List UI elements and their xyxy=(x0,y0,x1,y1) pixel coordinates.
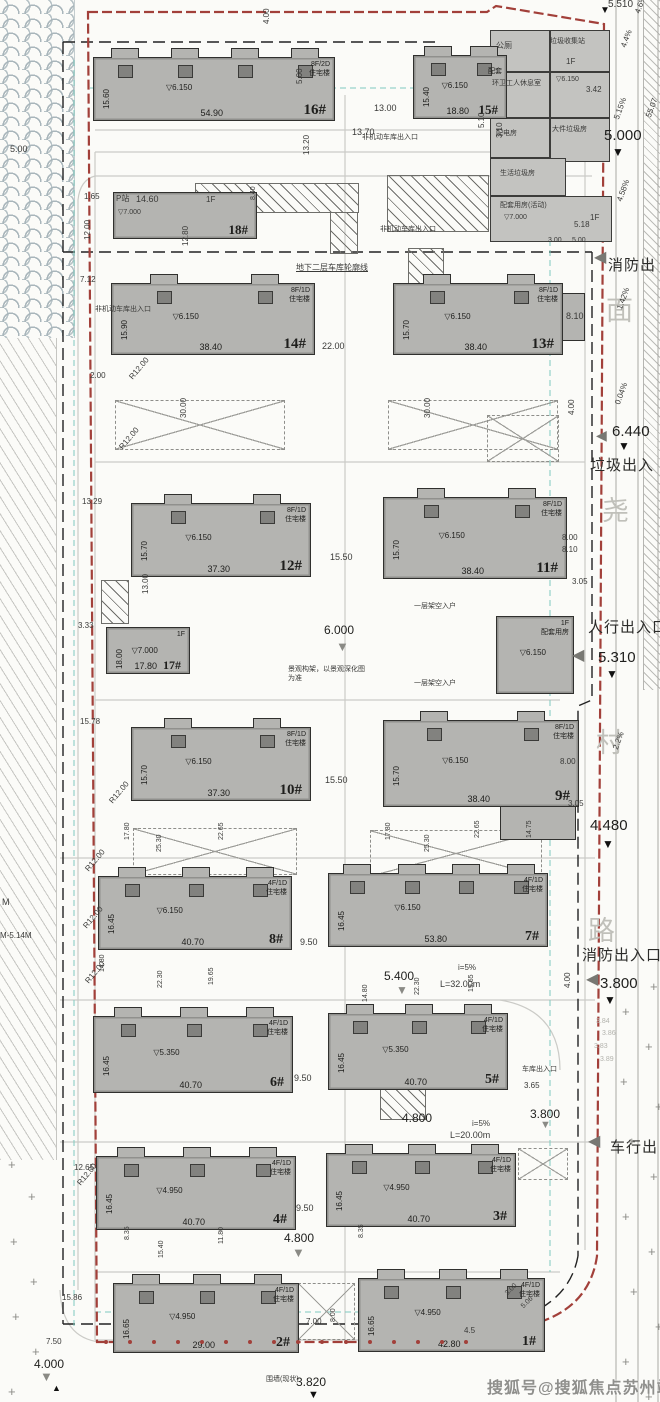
dim-label: 1F xyxy=(206,196,215,204)
facility-room xyxy=(550,30,610,72)
elevation-marker: ▼ xyxy=(336,640,349,653)
building-number: 6# xyxy=(270,1076,284,1090)
stair-core-bump xyxy=(231,48,259,58)
tree-symbol: + xyxy=(10,1235,18,1248)
dim-label: 3.86 xyxy=(602,1030,616,1037)
unit-core xyxy=(415,1161,430,1174)
building-elevation: ▽6.150 xyxy=(520,649,546,657)
building-number: 5# xyxy=(485,1073,499,1087)
dim-label: 3.83 xyxy=(594,1043,608,1050)
stair-core-bump xyxy=(417,488,445,498)
tree-symbol: + xyxy=(655,1100,660,1113)
unit-core xyxy=(514,291,529,304)
building-width-dim: 40.70 xyxy=(404,1078,427,1087)
stair-core-bump xyxy=(246,867,274,877)
unit-core xyxy=(352,1161,367,1174)
building-number: 8# xyxy=(269,933,283,947)
stair-core-bump xyxy=(164,494,192,504)
unit-core xyxy=(431,63,446,76)
building-depth-dim: 15.70 xyxy=(141,541,149,561)
unit-core xyxy=(190,1164,205,1177)
unit-core xyxy=(350,881,365,894)
dim-label: 3.10 xyxy=(496,122,504,138)
dim-label: P站 xyxy=(116,195,129,203)
unit-core xyxy=(139,1291,154,1304)
dim-label: 12.00 xyxy=(84,220,92,240)
building-type-label: 住宅楼 xyxy=(541,510,562,517)
stair-core-bump xyxy=(246,1007,274,1017)
stair-core-bump xyxy=(346,1004,374,1014)
tree-symbol: + xyxy=(620,1075,628,1088)
building-15: 配套15#18.8015.40▽6.150 xyxy=(413,55,507,119)
unit-core xyxy=(157,291,172,304)
dim-label: 5.400 xyxy=(384,970,414,982)
unit-core xyxy=(256,1164,271,1177)
dim-label: 大件垃圾房 xyxy=(552,126,587,133)
facility-room xyxy=(550,118,610,162)
dim-label: 22.65 xyxy=(474,820,481,838)
building-type-label: 住宅楼 xyxy=(522,886,543,893)
stair-core-bump xyxy=(114,1007,142,1017)
building-10: 8F/1D住宅楼10#37.3015.70▽6.150 xyxy=(131,727,311,801)
dim-label: 15.50 xyxy=(325,776,348,785)
elevation-marker: ▼ xyxy=(396,984,408,996)
unit-core xyxy=(124,1164,139,1177)
unit-core xyxy=(405,881,420,894)
building-elevation: ▽6.150 xyxy=(442,757,468,765)
building-8: 4F/1D住宅楼8#40.7016.45▽6.150 xyxy=(98,876,292,950)
dim-label: 7.00 xyxy=(306,1318,322,1326)
tree-symbol: + xyxy=(8,1158,16,1171)
tree-symbol: + xyxy=(655,1320,660,1333)
building-floors-tag: 4F/1D xyxy=(269,1020,288,1027)
building-elevation: ▽6.150 xyxy=(185,758,211,766)
dim-label: 非机动车库出入口 xyxy=(95,306,151,313)
stair-core-bump xyxy=(253,718,281,728)
unit-core xyxy=(238,65,253,78)
dim-label: 25.30 xyxy=(424,834,431,852)
dim-label: 8.00 xyxy=(562,534,578,542)
dim-label: 3.05 xyxy=(568,800,584,808)
stair-core-bump xyxy=(249,1147,277,1157)
dim-label: 5.00 xyxy=(572,237,586,244)
dim-label: 4.800 xyxy=(284,1232,314,1244)
building-floors-tag: 1F xyxy=(561,620,569,627)
dim-label: 17.80 xyxy=(124,822,131,840)
tree-symbol: + xyxy=(8,1385,16,1398)
dim-label: 4.00 xyxy=(263,8,271,24)
building-elevation: ▽5.350 xyxy=(153,1049,179,1057)
dim-label: 一层架空入户 xyxy=(414,603,456,610)
stair-core-bump xyxy=(424,46,452,56)
stair-core-bump xyxy=(452,864,480,874)
dim-label: 13.20 xyxy=(303,135,311,155)
stair-core-bump xyxy=(508,488,536,498)
dim-label: 5.00 xyxy=(10,145,28,154)
dim-label: 4.00 xyxy=(564,972,572,988)
building-depth-dim: 15.90 xyxy=(121,320,129,340)
building-floors-tag: 8F/1D xyxy=(539,287,558,294)
dim-label: 4.800 xyxy=(402,1112,432,1124)
stair-core-bump xyxy=(464,1004,492,1014)
tree-symbol: + xyxy=(650,980,658,993)
elevation-marker: ▼ xyxy=(602,838,614,850)
building-elevation: ▽6.150 xyxy=(157,907,183,915)
building-width-dim: 54.90 xyxy=(200,109,223,118)
dim-label: 垃圾收集站 xyxy=(550,38,585,45)
unit-core xyxy=(260,511,275,524)
building-1: 4F/1D住宅楼1#42.8016.65▽4.950 xyxy=(358,1278,545,1352)
boundary-dot xyxy=(440,1340,444,1344)
dim-label: 配套用房(活动) xyxy=(500,202,547,209)
building-type-label: 住宅楼 xyxy=(266,889,287,896)
building-width-dim: 40.70 xyxy=(179,1081,202,1090)
dim-label: 15.50 xyxy=(330,553,353,562)
dim-label: 14.75 xyxy=(526,820,533,838)
building-floors-tag: 4F/1D xyxy=(521,1282,540,1289)
stair-core-bump xyxy=(377,1269,405,1279)
stair-core-bump xyxy=(439,1269,467,1279)
entrance-marker: ◀ xyxy=(588,1134,600,1150)
fire-lane xyxy=(518,1148,568,1180)
building-type-label: 配套 xyxy=(488,68,502,75)
building-type-label: 住宅楼 xyxy=(285,740,306,747)
facility-room xyxy=(490,158,566,196)
unit-core xyxy=(253,1024,268,1037)
dim-label: ▽6.150 xyxy=(556,76,579,83)
dim-label: 8.00 xyxy=(330,1308,337,1322)
building-11: 8F/1D住宅楼11#38.4015.70▽6.150 xyxy=(383,497,567,579)
boundary-dot xyxy=(320,1340,324,1344)
building-PT: 1F配套用房▽6.150 xyxy=(496,616,574,694)
dim-label: 30.00 xyxy=(180,398,188,418)
elevation-marker: ▼ xyxy=(618,440,630,452)
dim-label: 15.40 xyxy=(158,1240,165,1258)
elevation-marker: ▼ xyxy=(292,1246,305,1259)
building-type-label: 住宅楼 xyxy=(267,1029,288,1036)
dim-label: 6.000 xyxy=(324,624,354,636)
building-type-label: 住宅楼 xyxy=(285,516,306,523)
unit-core xyxy=(446,1286,461,1299)
entrance-label: 人行出入口 xyxy=(588,620,660,635)
dim-label: 14.80 xyxy=(99,954,106,972)
entrance-label: 消防出入口 xyxy=(582,948,660,963)
dim-label: 一层架空入户 xyxy=(414,680,456,687)
road-name-char: 尧 xyxy=(602,498,629,525)
building-5: 4F/1D住宅楼5#40.7016.45▽5.350 xyxy=(328,1013,508,1090)
stair-core-bump xyxy=(164,718,192,728)
dim-label: 7.12 xyxy=(80,276,96,284)
tree-symbol: + xyxy=(630,1285,638,1298)
dim-label: 3.33 xyxy=(78,622,94,630)
dim-label: 公厕 xyxy=(496,42,512,50)
unit-core xyxy=(200,1291,215,1304)
building-number: 11# xyxy=(536,561,558,576)
fire-lane xyxy=(115,400,285,450)
building-width-dim: 40.70 xyxy=(181,938,204,947)
dim-label: 22.30 xyxy=(414,977,421,995)
stair-core-bump xyxy=(507,864,535,874)
building-width-dim: 38.40 xyxy=(199,343,222,352)
building-floors-tag: 8F/1D xyxy=(543,501,562,508)
elevation-marker: ▼ xyxy=(604,994,616,1006)
tree-symbol: + xyxy=(12,1310,20,1323)
building-number: 16# xyxy=(304,103,327,118)
building-17: 1F17#17.8018.00▽7.000 xyxy=(106,627,190,674)
unit-core xyxy=(424,505,439,518)
unit-core xyxy=(125,884,140,897)
stair-core-bump xyxy=(111,48,139,58)
tree-symbol: + xyxy=(650,1170,658,1183)
building-width-dim: 17.80 xyxy=(134,662,157,671)
building-elevation: ▽6.150 xyxy=(442,82,468,90)
unit-core xyxy=(187,1024,202,1037)
building-number: 2# xyxy=(276,1336,290,1350)
parking-stalls xyxy=(387,175,489,232)
dim-label: 8.10 xyxy=(566,312,584,321)
building-width-dim: 38.40 xyxy=(464,343,487,352)
elevation-marker: ▼ xyxy=(612,146,624,158)
dim-label: 非机动车库出入口 xyxy=(380,226,436,233)
building-number: 18# xyxy=(229,223,249,236)
building-number: 17# xyxy=(163,659,181,671)
boundary-dot xyxy=(200,1340,204,1344)
dim-label: 3.89 xyxy=(600,1056,614,1063)
dim-label: 4.5 xyxy=(464,1327,475,1335)
stair-core-bump xyxy=(517,711,545,721)
entrance-marker: ◀ xyxy=(596,428,607,442)
building-floors-tag: 8F/1D xyxy=(555,724,574,731)
building-elevation: ▽5.350 xyxy=(382,1046,408,1054)
building-type-label: 住宅楼 xyxy=(482,1026,503,1033)
boundary-dot xyxy=(248,1340,252,1344)
stair-core-bump xyxy=(171,48,199,58)
building-width-dim: 38.40 xyxy=(461,567,484,576)
tree-symbol: + xyxy=(32,1345,40,1358)
dim-label: L=20.00m xyxy=(450,1131,490,1140)
building-number: 14# xyxy=(284,337,307,352)
building-13: 8F/1D住宅楼13#38.4015.70▽6.150 xyxy=(393,283,563,355)
building-type-label: 住宅楼 xyxy=(537,296,558,303)
building-depth-dim: 16.45 xyxy=(103,1056,111,1076)
dim-label: 13.00 xyxy=(374,104,397,113)
building-depth-dim: 18.00 xyxy=(116,649,124,669)
boundary-dot xyxy=(368,1340,372,1344)
unit-core xyxy=(118,65,133,78)
dim-label: 5.000 xyxy=(604,128,642,143)
watermark: 搜狐号@搜狐焦点苏州站 xyxy=(487,1374,660,1398)
building-elevation: ▽6.150 xyxy=(166,84,192,92)
dim-label: 非机动车库出入口 xyxy=(362,134,418,141)
building-number: 13# xyxy=(532,337,555,352)
building-4: 4F/1D住宅楼4#40.7016.45▽4.950 xyxy=(96,1156,296,1230)
boundary-dot xyxy=(392,1340,396,1344)
entrance-label: 垃圾出入 xyxy=(590,458,654,473)
building-depth-dim: 15.60 xyxy=(103,89,111,109)
dim-label: 7.50 xyxy=(46,1338,62,1346)
tree-symbol: + xyxy=(648,1245,656,1258)
dim-label: i=5% xyxy=(472,1120,490,1128)
building-elevation: ▽4.950 xyxy=(383,1184,409,1192)
building-number: 3# xyxy=(493,1210,507,1224)
building-depth-dim: 16.45 xyxy=(108,914,116,934)
tree-symbol: + xyxy=(622,1210,630,1223)
building-type-label: 住宅楼 xyxy=(490,1166,511,1173)
tree-symbol: + xyxy=(645,1040,653,1053)
building-depth-dim: 16.45 xyxy=(338,911,346,931)
boundary-dot xyxy=(224,1340,228,1344)
building-depth-dim: 15.70 xyxy=(141,765,149,785)
stair-core-bump xyxy=(117,1147,145,1157)
unit-core xyxy=(189,884,204,897)
dim-label: 30.00 xyxy=(424,398,432,418)
site-plan: 搜狐号@搜狐焦点苏州站 8F/2D住宅楼16#54.9015.60▽6.150配… xyxy=(0,0,660,1402)
unit-core xyxy=(427,728,442,741)
building-type-label: 住宅楼 xyxy=(273,1296,294,1303)
building-floors-tag: 4F/1D xyxy=(524,877,543,884)
dim-label: 12.80 xyxy=(182,226,190,246)
road-edge-lines xyxy=(616,0,658,1402)
entrance-marker: ◀ xyxy=(572,648,584,664)
building-elevation: ▽6.150 xyxy=(185,534,211,542)
building-width-dim: 40.70 xyxy=(182,1218,205,1227)
fire-lane xyxy=(487,415,559,462)
building-number: 12# xyxy=(280,559,303,574)
building-depth-dim: 15.70 xyxy=(393,540,401,560)
stair-core-bump xyxy=(251,274,279,284)
stair-core-bump xyxy=(345,1144,373,1154)
building-9: 8F/1D住宅楼9#38.4015.70▽6.150 xyxy=(383,720,579,807)
building-width-dim: 53.80 xyxy=(424,935,447,944)
unit-core xyxy=(171,511,186,524)
building-width-dim: 37.30 xyxy=(207,789,230,798)
dim-label: 生活垃圾房 xyxy=(500,170,535,177)
dim-label: 3.820 xyxy=(296,1376,326,1388)
dim-label: 1F xyxy=(566,58,575,66)
parking-stalls xyxy=(330,212,358,254)
tree-symbol: + xyxy=(30,1275,38,1288)
building-number: 10# xyxy=(280,783,303,798)
building-width-dim: 38.40 xyxy=(467,795,490,804)
building-depth-dim: 16.65 xyxy=(368,1316,376,1336)
dim-label: 6.440 xyxy=(612,424,650,439)
dim-label: 9.50 xyxy=(296,1204,314,1213)
boundary-dot xyxy=(272,1340,276,1344)
dim-label: 8.35 xyxy=(124,1226,131,1240)
unit-core xyxy=(260,735,275,748)
dim-label: 9.50 xyxy=(294,1074,312,1083)
unit-core xyxy=(121,1024,136,1037)
building-16: 8F/2D住宅楼16#54.9015.60▽6.150 xyxy=(93,57,335,121)
dim-label: 13.29 xyxy=(82,498,102,506)
building-floors-tag: 8F/2D xyxy=(311,61,330,68)
stair-core-bump xyxy=(423,274,451,284)
dim-label: 22.65 xyxy=(218,822,225,840)
building-width-dim: 18.80 xyxy=(446,107,469,116)
building-number: 7# xyxy=(525,930,539,944)
building-floors-tag: 1F xyxy=(177,631,185,638)
dim-label: 22.30 xyxy=(157,970,164,988)
dim-label: 3.05 xyxy=(572,578,588,586)
building-12: 8F/1D住宅楼12#37.3015.70▽6.150 xyxy=(131,503,311,577)
elevation-marker: ▼ xyxy=(308,1390,319,1401)
building-floors-tag: 4F/1D xyxy=(268,880,287,887)
unit-core xyxy=(524,728,539,741)
dim-label: 11.80 xyxy=(218,1227,225,1244)
dim-label: 5.18 xyxy=(574,221,590,229)
dim-label: ▽7.000 xyxy=(504,214,527,221)
building-depth-dim: 16.45 xyxy=(106,1194,114,1214)
dim-label: i=5% xyxy=(458,964,476,972)
dim-label: 景观构架，以景观深化图为准 xyxy=(288,666,368,684)
stair-core-bump xyxy=(470,46,498,56)
boundary-dot xyxy=(104,1340,108,1344)
stair-core-bump xyxy=(420,711,448,721)
stair-core-bump xyxy=(182,867,210,877)
stair-core-bump xyxy=(254,1274,282,1284)
dim-label: M-5.14M xyxy=(0,932,32,940)
dim-label: 22.00 xyxy=(322,342,345,351)
parking-stalls xyxy=(101,580,129,624)
entrance-marker: ◀ xyxy=(594,250,606,266)
building-floors-tag: 8F/1D xyxy=(287,507,306,514)
elevation-marker: ▼ xyxy=(540,1120,551,1131)
stair-core-bump xyxy=(183,1147,211,1157)
building-7: 4F/1D住宅楼7#53.8016.45▽6.150 xyxy=(328,873,548,947)
dim-label: M xyxy=(2,898,10,907)
building-6: 4F/1D住宅楼6#40.7016.45▽5.350 xyxy=(93,1016,293,1093)
stair-core-bump xyxy=(118,867,146,877)
boundary-dot xyxy=(344,1340,348,1344)
dim-label: ▽7.000 xyxy=(118,209,141,216)
dim-label: 13.00 xyxy=(142,574,150,594)
dim-label: 3.42 xyxy=(586,86,602,94)
stair-core-bump xyxy=(150,274,178,284)
dim-label: 14.60 xyxy=(136,195,159,204)
building-type-label: 住宅楼 xyxy=(289,296,310,303)
fire-lane xyxy=(298,1283,355,1340)
unit-core xyxy=(412,1021,427,1034)
building-floors-tag: 4F/1D xyxy=(484,1017,503,1024)
dim-label: 19.65 xyxy=(208,967,215,985)
stair-core-bump xyxy=(180,1007,208,1017)
building-elevation: ▽4.950 xyxy=(415,1309,441,1317)
tree-symbol: + xyxy=(645,1390,653,1402)
dim-label: L=32.00m xyxy=(440,980,480,989)
dim-label: 25.30 xyxy=(156,834,163,852)
dim-label: 8.35 xyxy=(358,1224,365,1238)
dim-label: 15.86 xyxy=(62,1294,82,1302)
boundary-dot xyxy=(176,1340,180,1344)
dim-label: 5.00 xyxy=(296,68,304,84)
dim-label: 14.80 xyxy=(362,984,369,1002)
road-name-char: 路 xyxy=(588,918,615,945)
building-elevation: ▽6.150 xyxy=(173,313,199,321)
unit-core xyxy=(353,1021,368,1034)
stair-core-bump xyxy=(132,1274,160,1284)
stair-core-bump xyxy=(291,48,319,58)
building-floors-tag: 8F/1D xyxy=(291,287,310,294)
stair-core-bump xyxy=(398,864,426,874)
dim-label: 17.80 xyxy=(385,822,392,840)
dim-label: 围墙(现状) xyxy=(266,1376,299,1383)
building-depth-dim: 16.45 xyxy=(336,1191,344,1211)
unit-core xyxy=(384,1286,399,1299)
stair-core-bump xyxy=(253,494,281,504)
dim-label: 2.00 xyxy=(90,372,106,380)
dim-label: 3.00 xyxy=(548,237,562,244)
building-elevation: ▽6.150 xyxy=(394,904,420,912)
